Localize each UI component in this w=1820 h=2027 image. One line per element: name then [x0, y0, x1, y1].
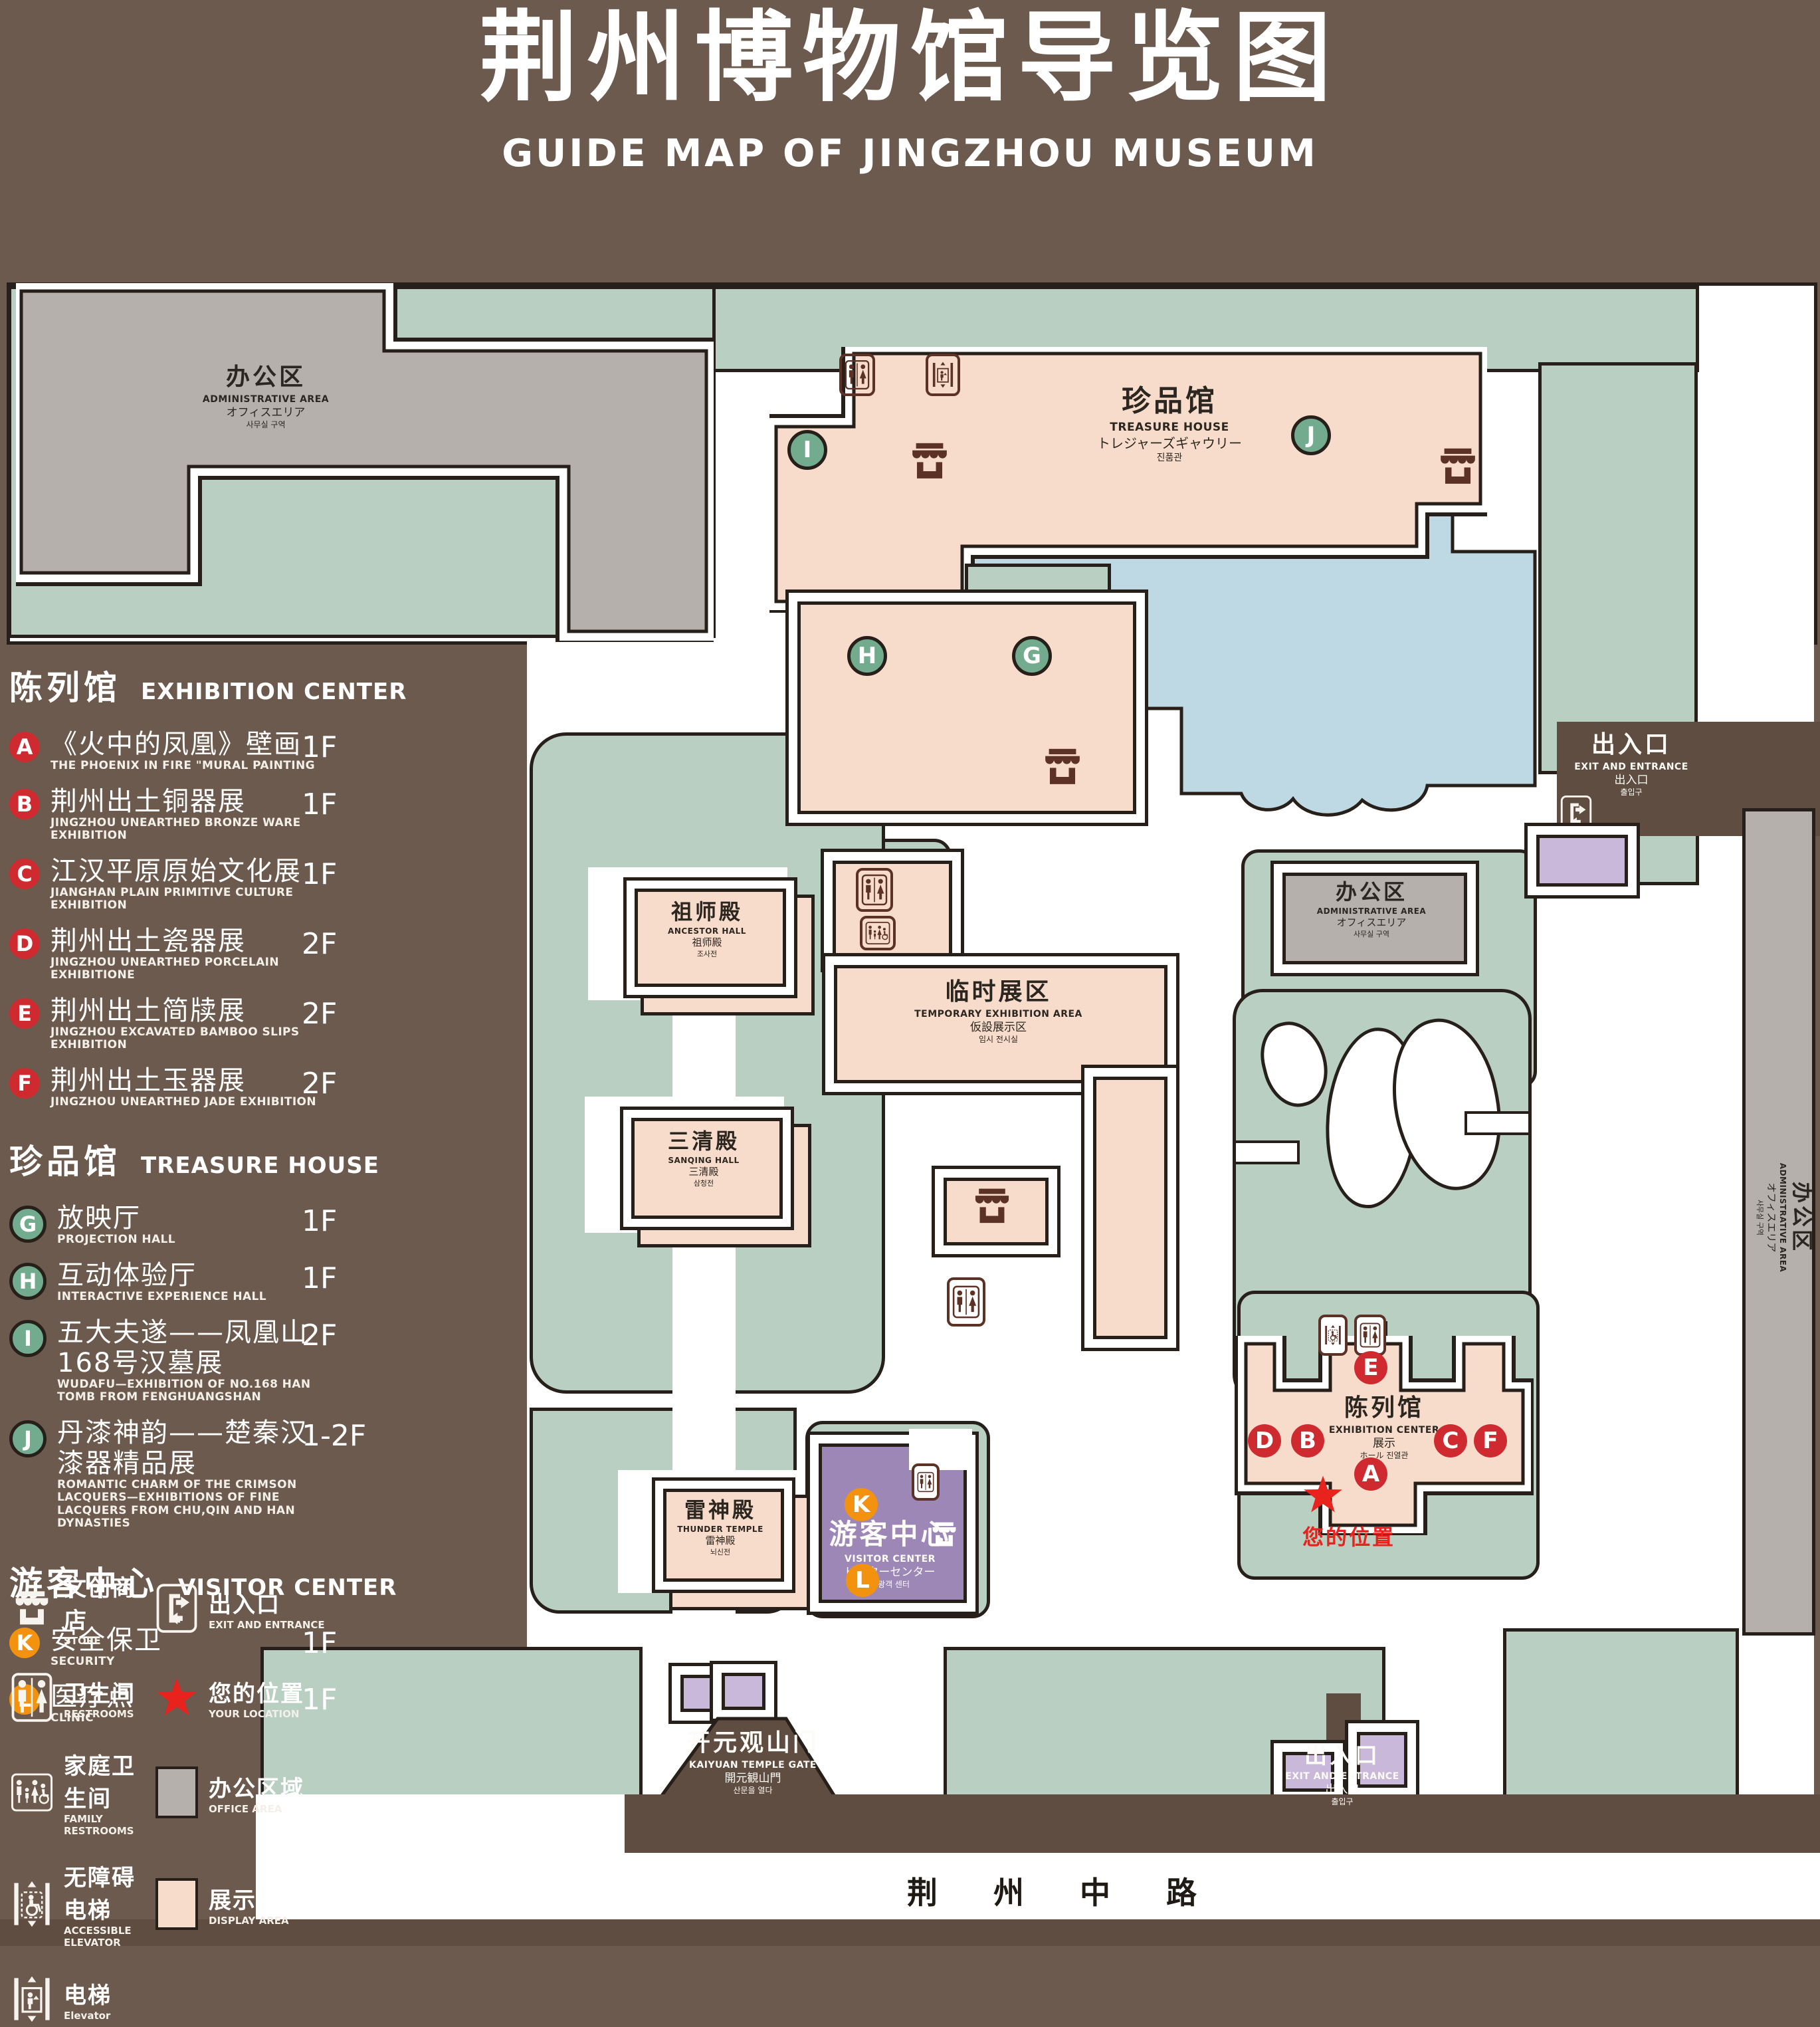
legend-item-floor: 2F: [302, 997, 337, 1031]
legend-item-en: JINGZHOU UNEARTHED JADE EXHIBITION: [51, 1096, 316, 1109]
store-icon: [970, 1184, 1014, 1228]
temporary-exhibition-label: 临时展区 TEMPORARY EXHIBITION AREA 仮設展示区 임시 …: [841, 977, 1156, 1045]
legend-item-floor: 2F: [302, 1319, 337, 1352]
legend-section-treasure: G放映厅PROJECTION HALL1FH互动体验厅INTERACTIVE E…: [9, 1203, 408, 1530]
family-icon: [11, 1767, 53, 1818]
legend-symbol-zh: 出入口: [209, 1586, 325, 1619]
legend-item-floor: 1F: [302, 730, 337, 764]
legend-item-en: JINGZHOU EXCAVATED BAMBOO SLIPS EXHIBITI…: [51, 1026, 328, 1052]
legend-badge-I: I: [9, 1320, 47, 1357]
exit-icon: [155, 1583, 198, 1634]
page-subtitle: GUIDE MAP OF JINGZHOU MUSEUM: [0, 132, 1820, 175]
legend-symbol-zh: 您的位置: [209, 1675, 304, 1708]
legend-symbol-en: OFFICE AREA: [209, 1803, 304, 1815]
legend-badge-A: A: [9, 732, 40, 762]
restroom-icon: [856, 868, 893, 912]
legend-item-en: JINGZHOU UNEARTHED BRONZE WARE EXHIBITIO…: [51, 817, 328, 843]
lawn-southeast: [1503, 1628, 1739, 1801]
map-marker-F: F: [1474, 1424, 1507, 1457]
legend-item-floor: 1F: [302, 857, 337, 891]
legend-symbol-accessible: 无障碍电梯ACCESSIBLE ELEVATOR: [11, 1860, 155, 1949]
legend-symbol-en: ACCESSIBLE ELEVATOR: [64, 1925, 155, 1949]
page-title: 荆州博物馆导览图: [0, 7, 1820, 110]
elevator-icon: [926, 354, 960, 396]
office-right-label: 办公区 ADMINISTRATIVE AREA オフィスエリア 사무실 구역: [1736, 1045, 1815, 1390]
garden-path: [1233, 1140, 1300, 1164]
legend-item-zh: 荆州出土玉器展: [51, 1065, 316, 1096]
legend-symbol-store: 文创商店STORE: [11, 1570, 155, 1647]
garden-path: [1465, 1111, 1531, 1135]
sanqing-hall-label: 三清殿 SANQING HALL 三清殿 삼청전: [631, 1128, 776, 1188]
map-marker-E: E: [1354, 1351, 1387, 1384]
legend-symbol-restroom: 卫生间RESTROOMS: [11, 1669, 155, 1725]
store-icon: [1435, 444, 1480, 489]
legend-symbol-zh: 无障碍电梯: [64, 1860, 155, 1925]
map-marker-A: A: [1354, 1457, 1387, 1491]
legend-symbol-swatch-office: 办公区域OFFICE AREA: [155, 1748, 375, 1837]
accessible-elevator-icon: [1318, 1315, 1348, 1356]
map-marker-L: L: [846, 1564, 879, 1597]
legend-item-floor: 1F: [302, 1204, 337, 1238]
your-location-star: [1302, 1474, 1344, 1515]
legend-item-zh: 荆州出土铜器展: [51, 786, 328, 817]
legend-item-en: JINGZHOU UNEARTHED PORCELAIN EXHIBITIONE: [51, 956, 328, 982]
legend-item-zh: 放映厅: [57, 1203, 175, 1233]
restroom-icon: [1354, 1315, 1386, 1356]
legend-badge-H: H: [9, 1263, 47, 1300]
restroom-icon: [912, 1463, 940, 1501]
legend-item-F: F荆州出土玉器展JINGZHOU UNEARTHED JADE EXHIBITI…: [9, 1065, 408, 1109]
legend-symbol-en: DISPLAY AREA: [209, 1915, 304, 1927]
legend-item-en: INTERACTIVE EXPERIENCE HALL: [57, 1291, 266, 1304]
legend-item-zh: 江汉平原原始文化展: [51, 856, 328, 887]
legend-symbols: 文创商店STORE出入口EXIT AND ENTRANCE卫生间RESTROOM…: [11, 1570, 409, 2027]
legend-symbol-en: RESTROOMS: [64, 1708, 136, 1720]
legend-item-floor: 1F: [302, 788, 337, 821]
store-icon: [929, 1519, 960, 1550]
legend-item-G: G放映厅PROJECTION HALL1F: [9, 1203, 408, 1247]
legend-item-H: H互动体验厅INTERACTIVE EXPERIENCE HALL1F: [9, 1260, 408, 1304]
map-marker-H: H: [847, 636, 887, 676]
family-restroom-icon: [860, 916, 896, 950]
legend-symbol-en: STORE: [64, 1635, 155, 1647]
road-label: 荆 州 中 路: [731, 1869, 1395, 1913]
legend-symbol-en: EXIT AND ENTRANCE: [209, 1619, 325, 1631]
legend-item-en: ROMANTIC CHARM OF THE CRIMSON LACQUERS—E…: [57, 1479, 328, 1531]
map-marker-J: J: [1291, 415, 1331, 455]
legend-item-E: E荆州出土简牍展JINGZHOU EXCAVATED BAMBOO SLIPS …: [9, 996, 408, 1052]
office-area-swatch: [155, 1766, 198, 1818]
your-location-label: 您的位置: [1276, 1521, 1422, 1551]
legend-item-B: B荆州出土铜器展JINGZHOU UNEARTHED BRONZE WARE E…: [9, 786, 408, 843]
map-marker-D: D: [1248, 1424, 1281, 1457]
restroom-icon: [947, 1277, 985, 1327]
temporary-exhibition-arm: [1093, 1077, 1167, 1339]
legend-symbol-zh: 家庭卫生间: [64, 1748, 155, 1813]
legend-symbol-en: Elevator: [64, 2010, 112, 2022]
legend-badge-D: D: [9, 928, 40, 959]
restroom-icon: [839, 354, 875, 396]
display-area-swatch: [155, 1878, 198, 1930]
kaiyuan-gate-label: 开元观山门 KAIYUAN TEMPLE GATE 開元観山門 산문을 열다: [650, 1728, 856, 1796]
ne-purple-building: [1536, 835, 1628, 887]
legend-badge-J: J: [9, 1420, 47, 1457]
legend-section-header: 珍品馆 TREASURE HOUSE: [9, 1135, 408, 1183]
restroom-icon: [11, 1672, 53, 1723]
legend-item-en: THE PHOENIX IN FIRE "MURAL PAINTING: [51, 760, 315, 773]
map-marker-I: I: [787, 430, 827, 470]
legend-item-zh: 荆州出土瓷器展: [51, 926, 328, 956]
legend-symbol-en: FAMILY RESTROOMS: [64, 1813, 155, 1837]
legend-symbol-zh: 展示区域: [209, 1882, 304, 1915]
legend-badge-F: F: [9, 1068, 40, 1099]
legend-item-floor: 2F: [302, 927, 337, 961]
ancestor-hall-label: 祖师殿 ANCESTOR HALL 祖师殿 조사전: [635, 899, 779, 959]
legend-symbol-star: 您的位置YOUR LOCATION: [155, 1669, 375, 1725]
lawn-east-of-pond: [1538, 362, 1698, 774]
map-marker-C: C: [1434, 1424, 1467, 1457]
legend-item-zh: 互动体验厅: [57, 1260, 266, 1291]
legend-item-zh: 《火中的凤凰》壁画: [51, 729, 315, 760]
legend-item-floor: 2F: [302, 1067, 337, 1101]
accessible-icon: [11, 1879, 53, 1929]
legend-item-zh: 荆州出土简牍展: [51, 996, 328, 1026]
star-icon: [155, 1672, 198, 1723]
legend-symbol-swatch-display: 展示区域DISPLAY AREA: [155, 1860, 375, 1949]
legend-item-en: WUDAFU—EXHIBITION OF NO.168 HAN TOMB FRO…: [57, 1378, 328, 1404]
legend-item-D: D荆州出土瓷器展JINGZHOU UNEARTHED PORCELAIN EXH…: [9, 926, 408, 982]
map-marker-B: B: [1291, 1424, 1324, 1457]
legend-symbol-zh: 文创商店: [64, 1570, 155, 1635]
legend-item-zh: 丹漆神韵——楚秦汉漆器精品展: [57, 1418, 328, 1479]
legend-item-J: J丹漆神韵——楚秦汉漆器精品展ROMANTIC CHARM OF THE CRI…: [9, 1418, 408, 1531]
legend-badge-B: B: [9, 789, 40, 819]
legend-symbol-zh: 卫生间: [64, 1675, 136, 1708]
store-icon: [907, 439, 952, 484]
elevator-icon: [11, 1974, 53, 2024]
store-icon: [1040, 744, 1085, 790]
legend-symbol-zh: 电梯: [64, 1977, 112, 2010]
legend-item-I: I五大夫遂——凤凰山168号汉墓展WUDAFU—EXHIBITION OF NO…: [9, 1317, 408, 1404]
legend-item-floor: 1F: [302, 1261, 337, 1295]
sidewalk: [625, 1794, 1820, 1853]
legend-symbol-family: 家庭卫生间FAMILY RESTROOMS: [11, 1748, 155, 1837]
legend-item-C: C江汉平原原始文化展JIANGHAN PLAIN PRIMITIVE CULTU…: [9, 856, 408, 912]
legend-item-en: JIANGHAN PLAIN PRIMITIVE CULTURE EXHIBIT…: [51, 887, 328, 912]
office-mid-label: 办公区 ADMINISTRATIVE AREA オフィスエリア 사무실 구역: [1282, 879, 1461, 939]
map-marker-K: K: [845, 1488, 878, 1521]
legend-item-A: A《火中的凤凰》壁画THE PHOENIX IN FIRE "MURAL PAI…: [9, 729, 408, 773]
legend-symbol-en: YOUR LOCATION: [209, 1708, 304, 1720]
office-northwest-building: [16, 283, 714, 642]
exit-ne-label: 出入口 EXIT AND ENTRANCE 出入口 출입구: [1562, 730, 1701, 798]
exit-s-label: 出入口 EXIT AND ENTRANCE 出入口 출입구: [1269, 1741, 1415, 1808]
legend-badge-C: C: [9, 859, 40, 889]
exit-icon: [1559, 795, 1593, 833]
legend-section-exhibition: A《火中的凤凰》壁画THE PHOENIX IN FIRE "MURAL PAI…: [9, 729, 408, 1109]
legend-section-header: 陈列馆 EXHIBITION CENTER: [9, 661, 408, 709]
map-marker-G: G: [1012, 636, 1052, 676]
legend-item-floor: 1-2F: [302, 1419, 366, 1453]
legend-badge-E: E: [9, 998, 40, 1029]
legend-item-en: PROJECTION HALL: [57, 1233, 175, 1247]
office-northwest-label: 办公区 ADMINISTRATIVE AREA オフィスエリア 사무실 구역: [133, 362, 399, 431]
legend-symbol-elevator: 电梯Elevator: [11, 1971, 155, 2027]
legend-symbol-zh: 办公区域: [209, 1770, 304, 1803]
treasure-house-label: 珍品馆 TREASURE HOUSE トレジャーズギャウリー 진품관: [1063, 382, 1276, 464]
treasure-south-wing: [797, 601, 1136, 814]
thunder-temple-label: 雷神殿 THUNDER TEMPLE 雷神殿 뇌신전: [663, 1497, 777, 1557]
legend-item-zh: 五大夫遂——凤凰山168号汉墓展: [57, 1317, 328, 1378]
store-icon: [11, 1583, 53, 1634]
legend-badge-G: G: [9, 1206, 47, 1243]
legend-symbol-exit: 出入口EXIT AND ENTRANCE: [155, 1570, 375, 1647]
